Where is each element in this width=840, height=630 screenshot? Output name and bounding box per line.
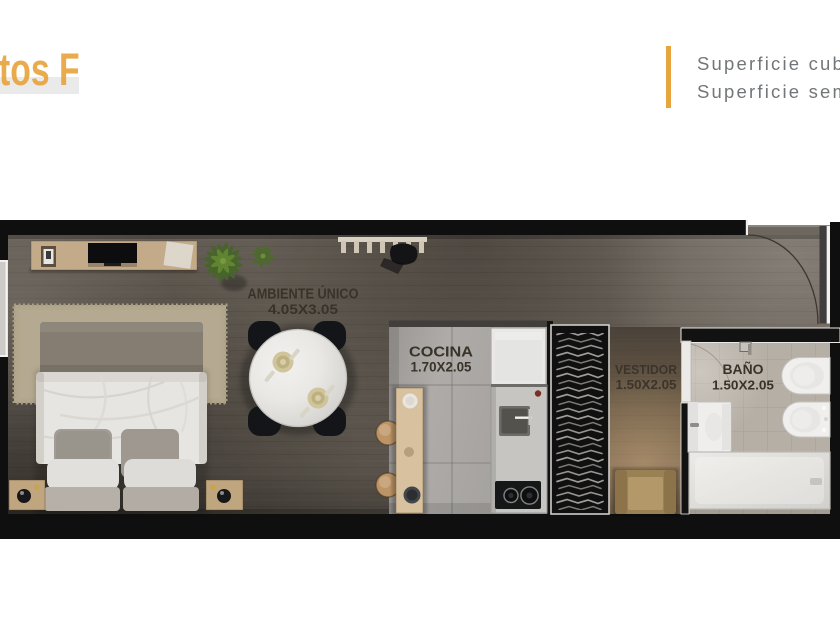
svg-text:BAÑO: BAÑO bbox=[723, 360, 764, 377]
svg-text:1.50X2.05: 1.50X2.05 bbox=[616, 378, 677, 392]
svg-text:1.70X2.05: 1.70X2.05 bbox=[411, 360, 472, 375]
svg-text:VESTIDOR: VESTIDOR bbox=[615, 362, 678, 377]
svg-text:COCINA: COCINA bbox=[409, 345, 474, 361]
svg-text:AMBIENTE ÚNICO: AMBIENTE ÚNICO bbox=[248, 285, 359, 303]
svg-text:1.50X2.05: 1.50X2.05 bbox=[712, 378, 774, 393]
svg-text:4.05X3.05: 4.05X3.05 bbox=[268, 301, 338, 317]
